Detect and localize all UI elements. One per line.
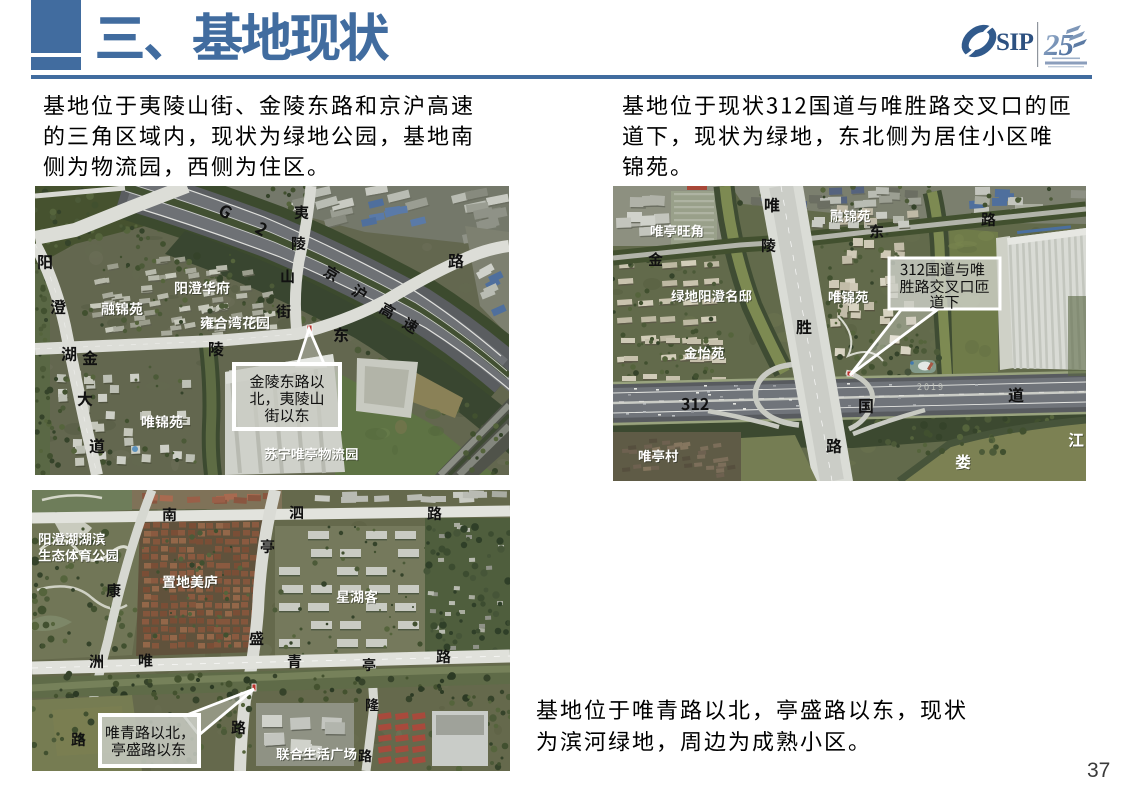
svg-text:SIP: SIP (996, 29, 1034, 56)
